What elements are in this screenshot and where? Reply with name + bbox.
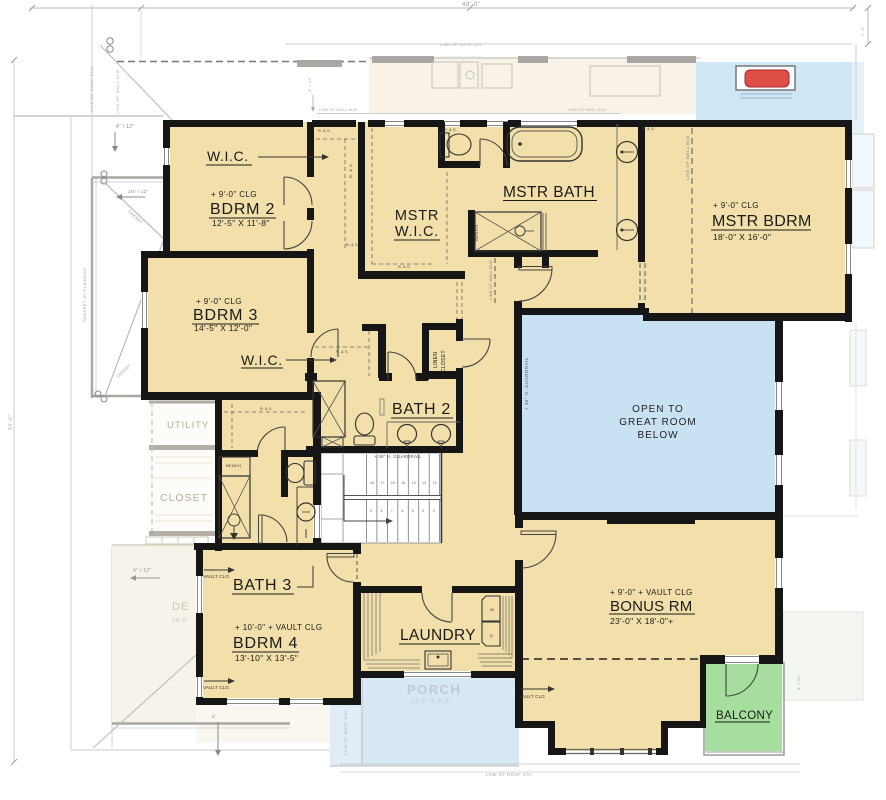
svg-text:BATH 2: BATH 2 [392,401,451,418]
svg-text:54'-6": 54'-6" [8,414,14,430]
svg-text:LINE OF ROOF O/H: LINE OF ROOF O/H [486,772,532,777]
svg-text:16: 16 [391,481,395,485]
svg-text:4: 4 [422,509,424,513]
svg-text:R. & S.: R. & S. [260,407,273,411]
svg-text:VAULT CLG: VAULT CLG [203,574,229,579]
svg-text:BDRM 3: BDRM 3 [193,307,258,324]
svg-text:13'-10" X 13'-5": 13'-10" X 13'-5" [235,653,298,663]
svg-text:BATH 3: BATH 3 [233,577,292,594]
svg-text:+ 9'-0" CLG: + 9'-0" CLG [196,297,242,306]
svg-text:14'-0: 14'-0 [172,618,187,624]
svg-text:LINE OF WALL BLW: LINE OF WALL BLW [319,108,357,112]
svg-text:PORCH: PORCH [407,682,461,697]
svg-text:BALCONY: BALCONY [716,710,773,722]
svg-text:8: 8 [380,509,382,513]
svg-text:BONUS RM: BONUS RM [610,598,692,615]
svg-text:13'-6" X 9'-6": 13'-6" X 9'-6" [410,698,452,705]
svg-text:+ 36" H. GUARDRAIL: + 36" H. GUARDRAIL [524,357,529,410]
svg-text:D: D [490,633,494,638]
svg-text:+ 36" H. GUARDRAIL: + 36" H. GUARDRAIL [374,454,422,459]
svg-text:LINE OF ROOF O/H: LINE OF ROOF O/H [440,42,481,47]
svg-text:15: 15 [401,481,405,485]
svg-text:5: 5 [412,509,414,513]
svg-text:7: 7 [391,509,393,513]
svg-text:13: 13 [422,481,426,485]
svg-text:LAUNDRY: LAUNDRY [400,627,476,644]
svg-text:LINEN: LINEN [433,352,439,368]
svg-text:4" / 12": 4" / 12" [116,124,134,130]
svg-text:LINE OF WALL BLW: LINE OF WALL BLW [685,135,690,180]
svg-text:3: 3 [433,509,435,513]
svg-text:CLOSET: CLOSET [441,350,447,372]
svg-text:17: 17 [380,481,384,485]
svg-text:R. & S.: R. & S. [642,127,655,131]
svg-text:VAULT CLG: VAULT CLG [519,694,545,699]
svg-text:R. & S.: R. & S. [336,350,349,354]
svg-text:R. & S.: R. & S. [444,128,457,132]
svg-text:6: 6 [401,509,403,513]
svg-text:23'-0" X 18'-0"+: 23'-0" X 18'-0"+ [610,616,673,626]
svg-text:14'-5" X 12'-0": 14'-5" X 12'-0" [194,323,252,333]
svg-text:R. & S.: R. & S. [398,265,411,269]
svg-text:12'-5" X 11'-8": 12'-5" X 11'-8" [212,218,270,228]
svg-text:MSTR BATH: MSTR BATH [503,184,595,201]
svg-text:14: 14 [412,481,416,485]
svg-text:1/4" / 12": 1/4" / 12" [128,189,148,194]
svg-text:R. & S.: R. & S. [346,243,359,247]
svg-text:BENCH: BENCH [226,463,241,468]
svg-text:4': 4' [212,714,216,719]
svg-text:OPEN TO: OPEN TO [632,404,684,415]
svg-text:R. & S.: R. & S. [318,129,331,133]
svg-text:18'-0" X 16'-0": 18'-0" X 16'-0" [713,232,771,242]
svg-text:W.I.C.: W.I.C. [241,352,283,368]
svg-text:W.I.C.: W.I.C. [207,148,249,164]
svg-text:UTILITY: UTILITY [167,420,209,431]
svg-text:LINE OF WALL BLW: LINE OF WALL BLW [115,69,120,114]
svg-text:LINE OF ROOF O/H: LINE OF ROOF O/H [343,711,348,755]
svg-text:LINE OF WALL BLW: LINE OF WALL BLW [489,260,493,300]
svg-text:BDRM 2: BDRM 2 [210,201,275,218]
svg-text:+ 10'-0" + VAULT CLG: + 10'-0" + VAULT CLG [235,623,323,632]
svg-text:VAULT CLG: VAULT CLG [203,685,229,690]
svg-text:GREAT ROOM: GREAT ROOM [619,417,696,428]
svg-text:BELOW: BELOW [637,430,678,441]
svg-text:LINE OF ROOF BLW: LINE OF ROOF BLW [89,66,94,112]
svg-text:4' / 12': 4' / 12' [307,76,312,92]
svg-text:18: 18 [370,481,374,485]
svg-text:BENCH: BENCH [474,224,479,241]
svg-text:DE: DE [172,601,189,613]
svg-text:W.I.C.: W.I.C. [395,224,439,240]
svg-text:9: 9 [370,509,372,513]
svg-text:BDRM 4: BDRM 4 [233,635,298,652]
svg-text:0' / 12: 0' / 12 [796,675,801,690]
svg-text:+ 9'-0" + VAULT CLG: + 9'-0" + VAULT CLG [610,588,693,597]
svg-text:MSTR BDRM: MSTR BDRM [712,213,812,230]
svg-text:48'-0": 48'-0" [462,2,480,8]
svg-text:12: 12 [433,481,437,485]
svg-text:+ 9'-0" CLG: + 9'-0" CLG [211,190,257,199]
svg-text:4" / 12": 4" / 12" [133,568,151,574]
svg-text:CLOSET: CLOSET [160,492,208,504]
svg-text:W: W [490,607,495,612]
svg-text:R. & S.: R. & S. [349,162,353,178]
svg-text:LINE OF WALL BLW: LINE OF WALL BLW [568,108,606,112]
svg-text:PARAPET W/ FLASHING: PARAPET W/ FLASHING [82,267,87,322]
svg-text:+ 9'-0" CLG: + 9'-0" CLG [713,201,759,210]
svg-text:MSTR: MSTR [395,208,439,224]
svg-text:1'-0": 1'-0" [860,25,865,36]
